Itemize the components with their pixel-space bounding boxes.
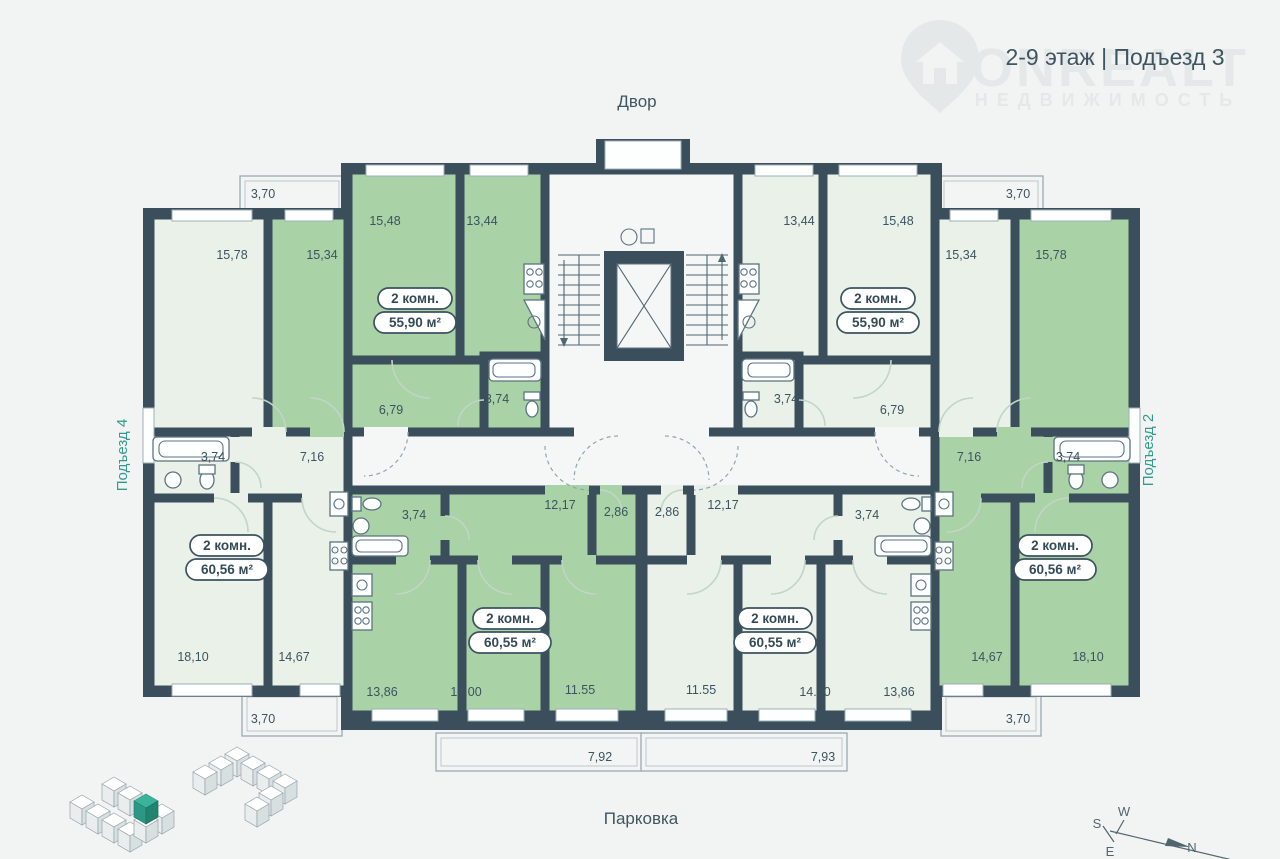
svg-text:11.55: 11.55 (686, 683, 716, 697)
svg-text:15,78: 15,78 (216, 248, 247, 262)
svg-text:13,44: 13,44 (783, 214, 814, 228)
svg-text:15,34: 15,34 (306, 248, 337, 262)
rooms-badge: 2 комн. (391, 291, 439, 306)
sink-icon (353, 518, 369, 534)
compass-south: S (1093, 816, 1102, 831)
svg-text:3,70: 3,70 (1006, 712, 1030, 726)
sink-icon (165, 472, 181, 488)
apartment-6055-right[interactable] (643, 490, 935, 715)
svg-text:3,74: 3,74 (774, 392, 798, 406)
svg-text:15,48: 15,48 (369, 214, 400, 228)
hall-7-16[interactable] (235, 432, 348, 498)
svg-text:3,70: 3,70 (251, 187, 275, 201)
rooms-badge: 2 комн. (751, 611, 799, 626)
kitchen-sink-icon (330, 492, 348, 516)
svg-text:7,92: 7,92 (588, 750, 612, 764)
window (556, 709, 618, 721)
window (172, 684, 252, 696)
svg-text:15,78: 15,78 (1035, 248, 1066, 262)
window (285, 210, 333, 221)
kitchen-sink-icon (352, 574, 372, 596)
svg-text:18,10: 18,10 (1072, 650, 1103, 664)
compass-north: N (1187, 840, 1196, 855)
window (366, 165, 444, 176)
svg-text:7,16: 7,16 (300, 450, 324, 464)
window (372, 709, 438, 721)
svg-text:3,70: 3,70 (1006, 187, 1030, 201)
svg-text:2,86: 2,86 (655, 505, 679, 519)
stove-icon (524, 264, 544, 294)
wc-2-86[interactable] (592, 490, 640, 560)
stairwell (545, 141, 738, 438)
room-15-78[interactable] (1015, 215, 1133, 432)
svg-text:13,44: 13,44 (466, 214, 497, 228)
svg-text:14.00: 14.00 (799, 685, 830, 699)
svg-text:7,93: 7,93 (811, 750, 835, 764)
bathtub-icon (352, 536, 408, 556)
toilet-icon (363, 498, 381, 510)
area-badge: 60,55 м² (484, 635, 537, 650)
svg-text:13,86: 13,86 (366, 685, 397, 699)
hall-7-16[interactable] (935, 432, 1048, 498)
rooms-badge: 2 комн. (486, 611, 534, 626)
compass-west: W (1118, 804, 1131, 819)
area-badge: 55,90 м² (389, 315, 442, 330)
compass-east: E (1106, 844, 1115, 859)
svg-text:14.00: 14.00 (450, 685, 481, 699)
svg-text:12,17: 12,17 (544, 498, 575, 512)
svg-text:2,86: 2,86 (604, 505, 628, 519)
watermark-sub: НЕДВИЖИМОСТЬ (975, 90, 1241, 110)
svg-text:14,67: 14,67 (971, 650, 1002, 664)
floor-plan-svg: ONREALT НЕДВИЖИМОСТЬ 2-9 этаж | Подъезд … (0, 0, 1280, 859)
balcony-door (300, 684, 340, 696)
parking-label: Парковка (604, 809, 679, 828)
entrance-2-label: Подъезд 2 (1140, 414, 1157, 486)
window (470, 165, 528, 176)
svg-text:6,79: 6,79 (880, 403, 904, 417)
toilet-icon (526, 401, 538, 417)
window (468, 709, 524, 721)
area-badge: 60,56 м² (1029, 562, 1082, 577)
stair-bay-window (605, 141, 681, 169)
svg-text:3,74: 3,74 (402, 508, 426, 522)
svg-text:3,74: 3,74 (855, 508, 879, 522)
svg-text:18,10: 18,10 (177, 650, 208, 664)
entrance-4-label: Подъезд 4 (114, 419, 131, 491)
bathtub-icon (489, 359, 541, 381)
area-badge: 60,55 м² (749, 635, 802, 650)
wc-2-86[interactable] (643, 490, 691, 560)
brand-pin-door (934, 68, 946, 84)
svg-text:7,16: 7,16 (957, 450, 981, 464)
floor-plan-page: ONREALT НЕДВИЖИМОСТЬ 2-9 этаж | Подъезд … (0, 0, 1280, 859)
area-badge: 55,90 м² (852, 315, 905, 330)
window (172, 210, 252, 221)
svg-text:11.55: 11.55 (565, 683, 595, 697)
svg-text:12,17: 12,17 (707, 498, 738, 512)
shared-corridor (348, 432, 935, 490)
apartment-6055-left[interactable] (348, 490, 640, 715)
room-18-10[interactable] (150, 498, 268, 690)
svg-text:6,79: 6,79 (379, 403, 403, 417)
svg-text:13,86: 13,86 (883, 685, 914, 699)
stair-door-gap (618, 426, 666, 438)
area-badge: 60,56 м² (201, 562, 254, 577)
rooms-badge: 2 комн. (203, 538, 251, 553)
svg-text:14,67: 14,67 (278, 650, 309, 664)
rooms-badge: 2 комн. (1031, 538, 1079, 553)
page-title: 2-9 этаж | Подъезд 3 (1005, 44, 1224, 70)
stove-icon (352, 602, 372, 630)
rooms-badge: 2 комн. (854, 291, 902, 306)
room-15-78[interactable] (150, 215, 268, 432)
stove-icon (330, 542, 348, 570)
svg-text:15,34: 15,34 (945, 248, 976, 262)
courtyard-label: Двор (617, 92, 656, 111)
svg-text:3,74: 3,74 (485, 392, 509, 406)
svg-text:3,70: 3,70 (251, 712, 275, 726)
svg-text:3,74: 3,74 (201, 450, 225, 464)
minimap-current-building[interactable] (134, 794, 158, 824)
svg-text:3,74: 3,74 (1056, 450, 1080, 464)
svg-text:15,48: 15,48 (882, 214, 913, 228)
